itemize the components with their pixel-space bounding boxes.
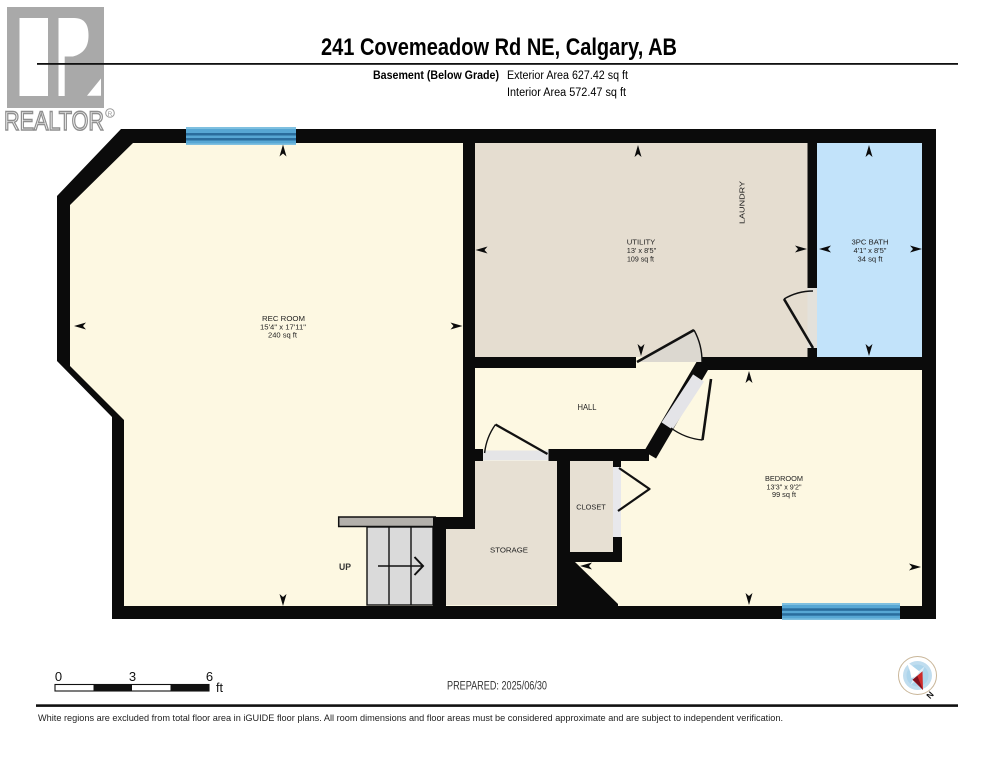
svg-text:REALTOR: REALTOR	[4, 106, 104, 136]
svg-text:White regions are excluded fro: White regions are excluded from total fl…	[38, 713, 783, 723]
svg-text:0: 0	[55, 669, 62, 684]
svg-text:Basement (Below Grade): Basement (Below Grade)	[373, 70, 499, 82]
svg-text:ft: ft	[216, 681, 223, 695]
svg-text:LAUNDRY: LAUNDRY	[738, 181, 747, 224]
svg-text:3: 3	[129, 669, 136, 684]
svg-text:240 sq ft: 240 sq ft	[268, 331, 297, 340]
svg-text:CLOSET: CLOSET	[576, 503, 606, 512]
svg-text:PREPARED: 2025/06/30: PREPARED: 2025/06/30	[447, 681, 547, 693]
svg-text:241 Covemeadow Rd NE, Calgary,: 241 Covemeadow Rd NE, Calgary, AB	[321, 34, 677, 61]
svg-text:Exterior Area 627.42 sq ft: Exterior Area 627.42 sq ft	[507, 70, 629, 82]
svg-text:34 sq ft: 34 sq ft	[858, 254, 883, 263]
svg-text:99 sq ft: 99 sq ft	[772, 490, 796, 499]
svg-text:109 sq ft: 109 sq ft	[627, 254, 654, 263]
svg-text:Interior Area 572.47 sq ft: Interior Area 572.47 sq ft	[507, 87, 627, 99]
svg-text:UP: UP	[339, 562, 351, 572]
svg-text:HALL: HALL	[578, 403, 598, 412]
svg-text:STORAGE: STORAGE	[490, 545, 528, 554]
svg-text:R: R	[108, 111, 113, 118]
svg-text:6: 6	[206, 669, 213, 684]
